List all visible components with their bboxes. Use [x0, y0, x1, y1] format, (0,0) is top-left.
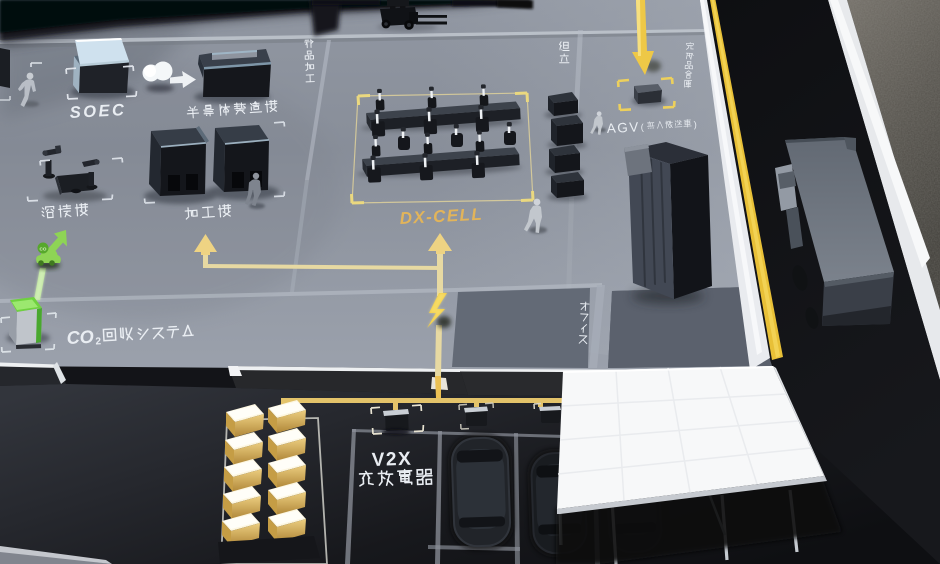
svg-text:2: 2: [95, 336, 102, 347]
svg-text:CO: CO: [40, 247, 47, 252]
svg-text:): ): [693, 119, 697, 129]
svg-text:CO: CO: [66, 327, 94, 348]
svg-text:(: (: [640, 122, 644, 132]
svg-text:SOEC: SOEC: [69, 101, 127, 122]
svg-text:AGV: AGV: [606, 119, 640, 136]
svg-text:V2X: V2X: [371, 449, 412, 471]
